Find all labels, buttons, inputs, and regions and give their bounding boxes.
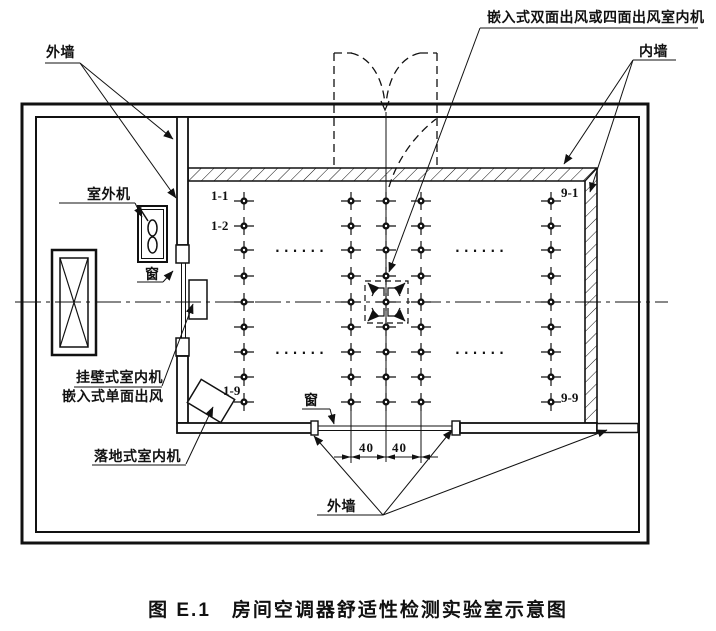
wall-mounted-unit-label: 挂壁式室内机 — [76, 369, 163, 385]
measurement-point — [411, 192, 431, 210]
measurement-point — [376, 241, 396, 259]
measurement-point — [541, 192, 561, 210]
point-label-9-9: 9-9 — [561, 390, 578, 406]
ellipsis-text: ...... — [274, 241, 327, 256]
measurement-point — [411, 267, 431, 285]
measurement-point — [341, 192, 361, 210]
measurement-point — [411, 217, 431, 235]
measurement-point — [341, 318, 361, 336]
airflow-arrow-sw-icon — [368, 314, 375, 321]
measurement-point — [411, 368, 431, 386]
room-bottom-wall — [177, 421, 638, 435]
measurement-point — [376, 217, 396, 235]
measurement-point — [234, 343, 254, 361]
point-label-1-9: 1-9 — [223, 383, 240, 399]
measurement-point — [234, 293, 254, 311]
measurement-point — [541, 217, 561, 235]
point-label-9-1: 9-1 — [561, 185, 578, 201]
leader-outer-wall-bottom — [314, 430, 607, 515]
measurement-point — [411, 343, 431, 361]
measurement-point — [341, 267, 361, 285]
measurement-point — [234, 318, 254, 336]
ellipsis-text: ...... — [454, 241, 507, 256]
outdoor-unit-label: 室外机 — [87, 186, 131, 202]
measurement-point — [341, 343, 361, 361]
dimension-40-left: 40 — [359, 440, 374, 456]
measurement-point — [376, 343, 396, 361]
measurement-point — [341, 368, 361, 386]
measurement-point — [411, 318, 431, 336]
window-left-label: 窗 — [145, 266, 160, 282]
leader-outer-wall-top — [45, 63, 176, 198]
window-bottom-label: 窗 — [304, 392, 319, 408]
measurement-point — [376, 318, 396, 336]
inner-wall-hatched — [188, 168, 597, 423]
measurement-point — [411, 293, 431, 311]
measurement-point — [376, 368, 396, 386]
floor-unit-label: 落地式室内机 — [94, 448, 181, 464]
point-label-1-1: 1-1 — [211, 188, 228, 204]
left-partition-wall — [176, 117, 189, 423]
airflow-arrow-se-icon — [398, 314, 405, 321]
fan-icon — [148, 237, 157, 253]
measurement-point — [376, 293, 396, 311]
measurement-point — [234, 217, 254, 235]
outer-wall-top-label: 外墙 — [46, 44, 75, 60]
measurement-point — [234, 267, 254, 285]
leader-cassette-label — [389, 28, 698, 272]
outdoor-unit — [138, 206, 167, 262]
measurement-point — [541, 318, 561, 336]
leader-outdoor-unit — [59, 203, 142, 217]
measurement-point — [541, 393, 561, 411]
measurement-point — [411, 241, 431, 259]
outer-wall-bottom-label: 外墙 — [327, 498, 356, 514]
measurement-point — [341, 217, 361, 235]
ellipsis-text: ...... — [454, 343, 507, 358]
figure-title: 图 E.1 房间空调器舒适性检测实验室示意图 — [0, 595, 716, 622]
measurement-point — [341, 293, 361, 311]
embedded-single-outlet-label: 嵌入式单面出风 — [62, 388, 164, 404]
grid-ellipsis: ...... ...... ...... ...... — [274, 241, 507, 358]
dimension-40-right: 40 — [392, 440, 407, 456]
measurement-point — [234, 241, 254, 259]
point-label-1-2: 1-2 — [211, 218, 228, 234]
measurement-point — [541, 343, 561, 361]
airflow-arrow-nw-icon — [368, 283, 375, 290]
measurement-point — [541, 267, 561, 285]
laboratory-plan-drawing: ...... ...... ...... ...... — [0, 0, 716, 631]
measurement-point — [541, 293, 561, 311]
cassette-unit-label: 嵌入式双面出风或四面出风室内机 — [487, 9, 705, 25]
wall-mounted-indoor-unit — [189, 280, 207, 319]
measurement-point — [234, 192, 254, 210]
measurement-point — [541, 241, 561, 259]
measurement-point — [376, 393, 396, 411]
airflow-arrow-ne-icon — [398, 283, 405, 290]
figure-canvas: ...... ...... ...... ...... — [0, 0, 716, 631]
measurement-point — [411, 393, 431, 411]
inner-wall-label: 内墙 — [639, 43, 668, 59]
measurement-point — [376, 192, 396, 210]
measurement-point — [341, 241, 361, 259]
measurement-point — [376, 267, 396, 285]
ellipsis-text: ...... — [274, 343, 327, 358]
measurement-point — [541, 368, 561, 386]
fan-icon — [148, 220, 157, 236]
measurement-point — [341, 393, 361, 411]
window-bottom — [318, 426, 452, 431]
